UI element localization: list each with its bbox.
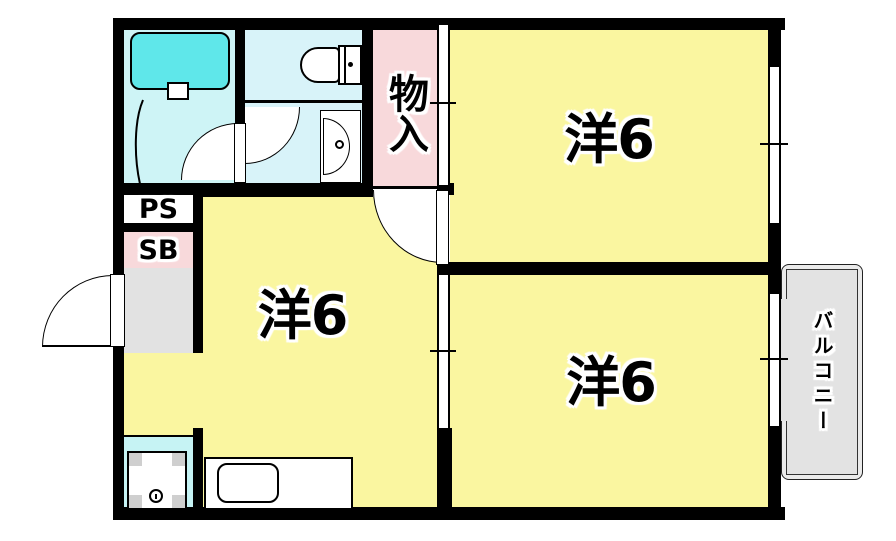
balcony-label: バルコニー xyxy=(812,310,832,435)
door-leaf-bathroom xyxy=(234,123,246,183)
label-western-room-middle: 洋6 xyxy=(195,289,410,343)
door-leaf-entry xyxy=(110,274,125,347)
kitchen-sink xyxy=(217,463,279,503)
window-top-right-room xyxy=(769,66,780,224)
door-leaf-top-right-room xyxy=(436,190,449,265)
floor-plan: PS SB バルコニー xyxy=(0,0,896,541)
washing-machine-corner xyxy=(172,453,185,466)
toilet-bowl xyxy=(300,47,340,83)
pipe-space-box: PS xyxy=(124,195,193,223)
wall-laundry-east xyxy=(193,428,203,520)
wall-left xyxy=(113,18,124,520)
label-storage-closet: 物入 xyxy=(373,40,437,185)
balcony-inner-floor: バルコニー xyxy=(786,269,858,475)
wall-bath-toilet xyxy=(235,25,245,124)
label-western-room-bottom-right: 洋6 xyxy=(452,356,770,410)
toilet-flush-handle xyxy=(348,62,353,67)
window-balcony-door xyxy=(769,293,780,427)
door-swing-entry xyxy=(42,275,113,347)
washing-machine-pan xyxy=(127,451,187,510)
shower-partition-line xyxy=(131,99,153,185)
toilet-tank xyxy=(338,45,362,85)
washing-machine-corner xyxy=(129,495,142,508)
shoe-box-label: SB xyxy=(138,237,178,264)
label-western-room-top-right: 洋6 xyxy=(450,113,768,167)
balcony: バルコニー xyxy=(781,264,863,480)
wall-between-right-rooms xyxy=(437,262,768,275)
entry-genkan-floor xyxy=(124,268,193,353)
pipe-space-label: PS xyxy=(139,196,178,223)
storage-south-edge xyxy=(373,186,437,189)
wall-storage-west xyxy=(362,25,373,197)
toilet-tank-line xyxy=(344,47,346,83)
storage-sliding-door xyxy=(437,25,450,185)
washbasin-drain xyxy=(335,140,344,149)
washing-machine-corner xyxy=(129,453,142,466)
washing-machine-drain-icon xyxy=(149,489,163,503)
wall-partition-lower xyxy=(437,428,452,520)
shoe-box: SB xyxy=(124,232,193,268)
wall-toilet-washbasin xyxy=(245,100,362,103)
washing-machine-corner xyxy=(172,495,185,508)
bathtub-faucet-deck xyxy=(167,82,189,100)
grid-tick-partition-lower xyxy=(430,350,456,352)
balcony-opening xyxy=(781,299,791,421)
